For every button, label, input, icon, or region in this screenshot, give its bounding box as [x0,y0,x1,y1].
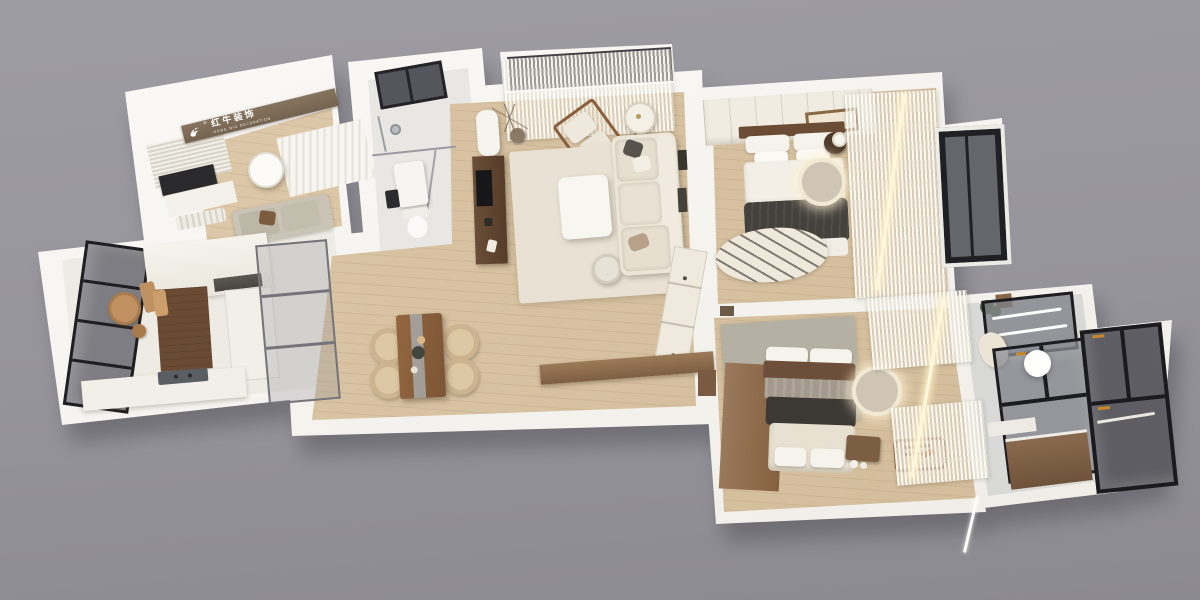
floorplan-scene: ® 红牛装饰 HONG NIU DECORATION [0,0,1200,600]
cabinet-decor [486,239,497,253]
door-frame-bar [262,289,330,298]
closet-seam [661,321,695,329]
window-handle [1016,352,1026,356]
daybed-pillow [259,210,277,226]
sofa-seat [621,225,672,272]
window-mullion [83,279,143,290]
wall-art-frame [677,188,687,212]
bay-window-glass [934,124,1011,267]
glass-frame-bar [1002,391,1098,407]
round-serving-board [108,292,141,325]
shower-head [390,124,401,135]
master-curtains [845,90,948,299]
lamp-finial [636,114,641,119]
dining-table [396,313,446,399]
bed-foot-pillow [774,447,807,467]
sofa-seat [618,181,663,226]
bathroom-dark-fixture [385,189,400,209]
window-handle [1098,406,1110,410]
window-mullion [405,69,414,101]
bedroom2-bed [758,344,858,477]
registered-mark: ® [203,121,208,126]
wall-art-frame [677,150,687,170]
closet-seam [668,281,702,289]
window-sill-line [1097,412,1155,424]
master-round-mirror [798,158,846,206]
bedroom2-art-frame [720,306,734,316]
door-frame-bar [266,341,334,350]
bull-logo-icon [186,124,202,140]
tv-screen [476,170,493,207]
bedroom2-wardrobe-stub [698,370,716,396]
dining-chair [442,324,479,361]
dining-chair [442,358,479,395]
tv-cabinet [472,155,508,264]
toilet [402,206,432,241]
study-round-table [248,152,284,188]
wing-windows [1080,322,1179,494]
kitchen-sliding-door [255,239,341,405]
small-bowl [132,324,146,338]
bedroom2-curtain-bottom [891,400,989,486]
window-handle [1092,334,1104,338]
bedroom2-curtain-top [867,290,973,370]
towel-bar [998,324,1068,337]
window-mullion [1120,330,1131,400]
cabinet-decor [484,218,492,226]
toilet-bowl [406,215,429,240]
window-mullion [965,130,975,262]
table-dish [417,336,425,344]
side-table [592,254,622,284]
ensuite-vanity [1005,429,1093,490]
window-mullion [72,358,132,369]
tv-speaker-column [475,109,500,156]
daybed-cushion [279,199,321,232]
bed-foot-pillow [810,448,845,468]
towel-bar [992,307,1062,320]
bench-decor [850,460,858,468]
ensuite-ceiling-light [1024,350,1051,377]
table-lamp [832,132,847,147]
faucet-dot [174,374,178,378]
bench-decor [860,462,867,469]
floor-lamp-shade [624,102,656,134]
bedroom2-bench [845,435,881,462]
coffee-table [557,174,612,240]
closet-handle [683,276,688,281]
faucet-dot [188,373,192,377]
